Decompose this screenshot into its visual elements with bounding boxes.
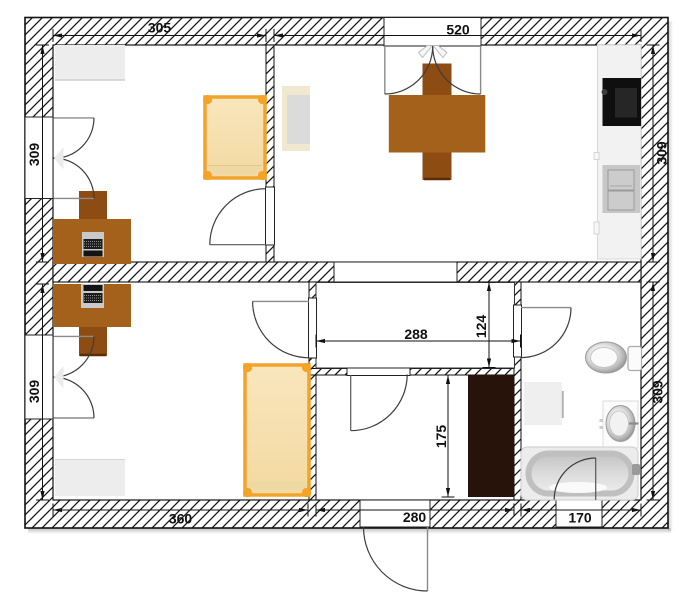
svg-text:280: 280 <box>403 509 427 525</box>
svg-text:305: 305 <box>148 20 172 36</box>
svg-text:309: 309 <box>26 380 42 404</box>
svg-text:124: 124 <box>473 315 489 339</box>
svg-text:309: 309 <box>26 143 42 167</box>
svg-text:309: 309 <box>650 380 666 404</box>
svg-text:288: 288 <box>404 326 428 342</box>
svg-text:175: 175 <box>433 425 449 449</box>
svg-text:309: 309 <box>654 141 670 165</box>
svg-text:520: 520 <box>446 22 470 38</box>
svg-text:360: 360 <box>169 511 193 527</box>
svg-text:170: 170 <box>568 510 592 526</box>
